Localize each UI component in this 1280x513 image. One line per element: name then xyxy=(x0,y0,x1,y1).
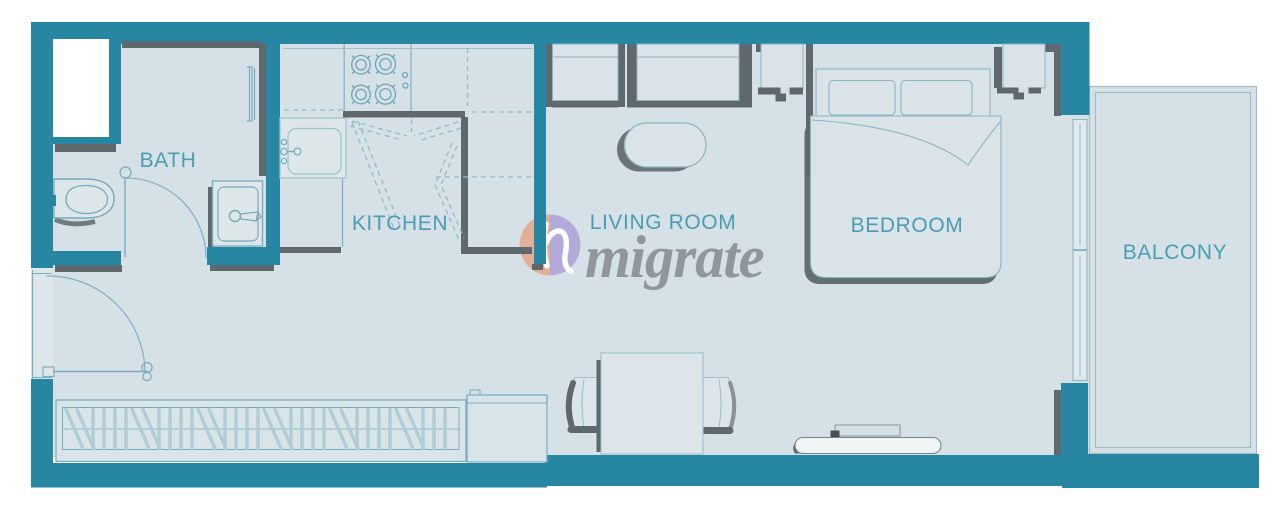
svg-text:BEDROOM: BEDROOM xyxy=(851,214,964,237)
svg-text:BALCONY: BALCONY xyxy=(1123,241,1228,264)
svg-text:KITCHEN: KITCHEN xyxy=(352,212,448,235)
svg-text:LIVING ROOM: LIVING ROOM xyxy=(590,211,737,234)
svg-text:BATH: BATH xyxy=(140,149,197,172)
